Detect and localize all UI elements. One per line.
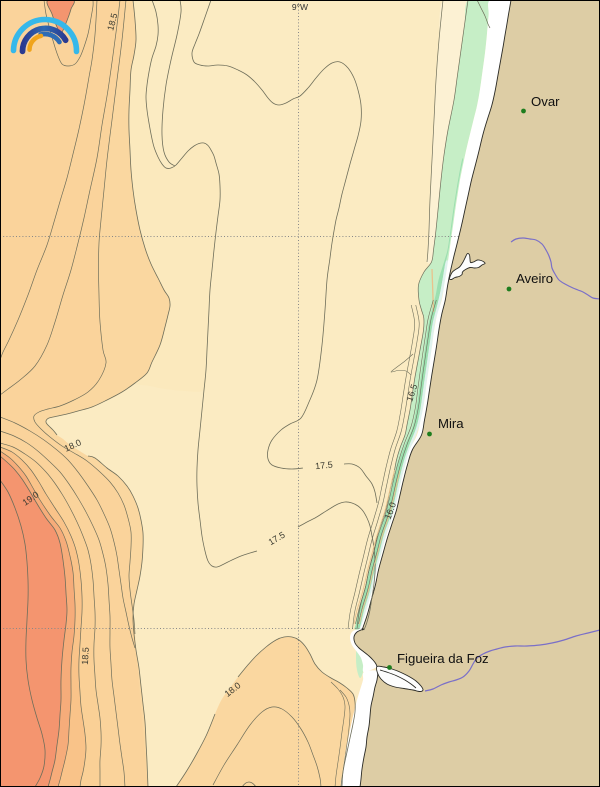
svg-text:Figueira da Foz: Figueira da Foz: [397, 651, 489, 666]
svg-text:Ovar: Ovar: [531, 94, 560, 109]
svg-text:Aveiro: Aveiro: [516, 271, 553, 286]
svg-text:17.5: 17.5: [315, 459, 333, 471]
svg-text:18.5: 18.5: [80, 647, 91, 665]
svg-text:9°W: 9°W: [292, 2, 308, 12]
svg-text:Mira: Mira: [438, 416, 464, 431]
